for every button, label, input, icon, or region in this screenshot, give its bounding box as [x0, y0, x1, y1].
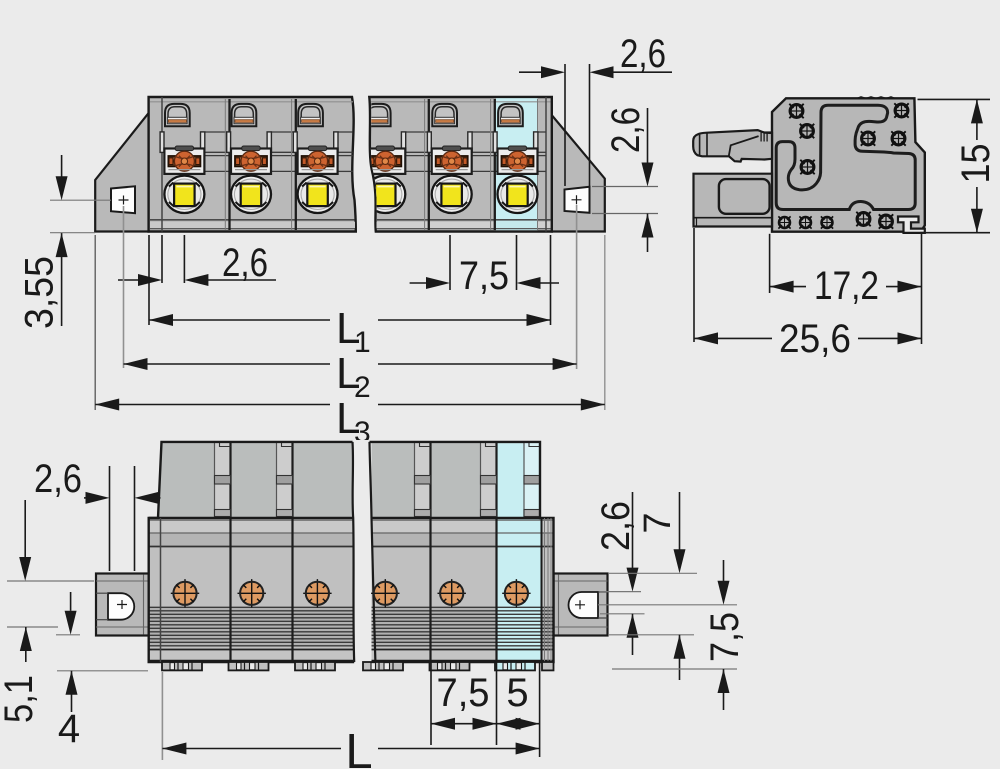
svg-text:L: L: [345, 725, 372, 769]
svg-text:2,6: 2,6: [604, 107, 648, 153]
svg-text:7: 7: [637, 512, 679, 533]
svg-text:25,6: 25,6: [779, 317, 851, 361]
svg-text:4: 4: [58, 707, 80, 751]
svg-text:2,6: 2,6: [34, 457, 82, 501]
svg-text:7,5: 7,5: [437, 671, 490, 715]
svg-text:7,5: 7,5: [703, 612, 747, 662]
svg-text:7,5: 7,5: [459, 254, 509, 298]
svg-text:2,6: 2,6: [594, 501, 638, 551]
svg-text:3,55: 3,55: [18, 256, 62, 329]
svg-text:2,6: 2,6: [222, 241, 268, 285]
svg-text:17,2: 17,2: [814, 264, 879, 308]
svg-text:5,1: 5,1: [0, 675, 41, 723]
svg-text:15: 15: [954, 144, 998, 184]
svg-text:2,6: 2,6: [620, 32, 666, 76]
svg-text:5: 5: [506, 671, 528, 715]
